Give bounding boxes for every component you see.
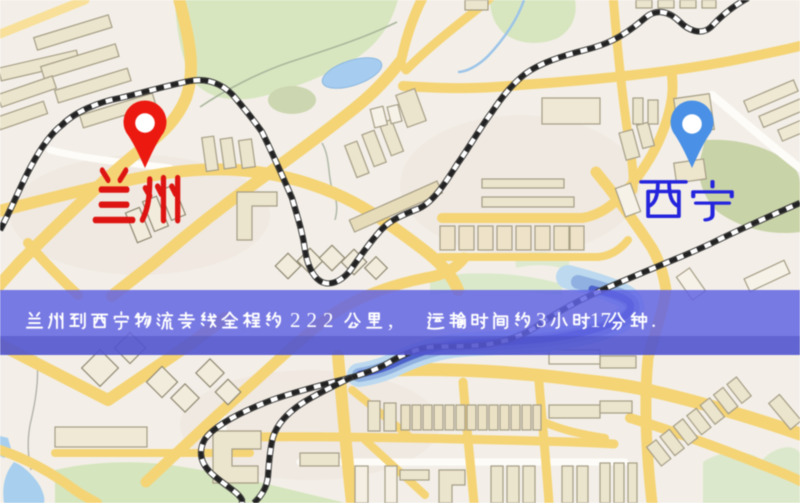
svg-text:3: 3 bbox=[536, 308, 547, 332]
svg-text:17: 17 bbox=[590, 308, 611, 332]
svg-text:222: 222 bbox=[290, 308, 340, 332]
svg-text:,: , bbox=[388, 307, 394, 332]
svg-text:.: . bbox=[651, 308, 656, 332]
